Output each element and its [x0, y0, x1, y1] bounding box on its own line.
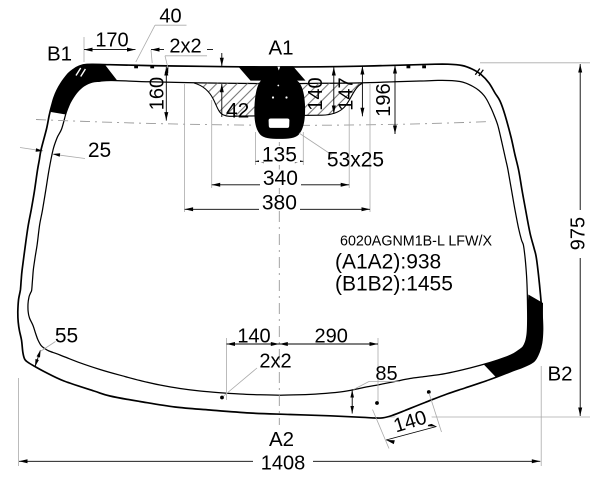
svg-text:147: 147 [336, 77, 358, 110]
svg-text:(A1A2):938: (A1A2):938 [335, 251, 441, 274]
svg-text:25: 25 [88, 139, 111, 162]
svg-text:380: 380 [262, 191, 297, 214]
svg-text:2x2: 2x2 [259, 351, 291, 373]
svg-text:40: 40 [159, 6, 181, 28]
svg-text:(B1B2):1455: (B1B2):1455 [335, 273, 453, 296]
svg-text:170: 170 [95, 30, 128, 52]
svg-text:196: 196 [373, 83, 395, 116]
svg-text:2x2: 2x2 [169, 36, 201, 58]
svg-text:140: 140 [237, 326, 270, 348]
svg-text:53x25: 53x25 [327, 149, 384, 172]
svg-text:290: 290 [315, 326, 348, 348]
svg-text:1408: 1408 [261, 453, 306, 475]
svg-text:160: 160 [147, 77, 169, 110]
svg-text:42: 42 [226, 100, 249, 123]
svg-text:B1: B1 [47, 43, 72, 66]
svg-text:975: 975 [568, 217, 590, 250]
svg-text:A2: A2 [269, 428, 294, 451]
svg-text:B2: B2 [547, 363, 572, 386]
svg-text:55: 55 [55, 325, 78, 348]
svg-text:85: 85 [375, 363, 397, 385]
svg-text:135: 135 [262, 143, 297, 166]
svg-text:A1: A1 [268, 37, 293, 60]
svg-text:140: 140 [305, 77, 327, 110]
svg-text:340: 340 [263, 167, 298, 190]
svg-text:6020AGNM1B-L LFW/X: 6020AGNM1B-L LFW/X [340, 234, 492, 250]
